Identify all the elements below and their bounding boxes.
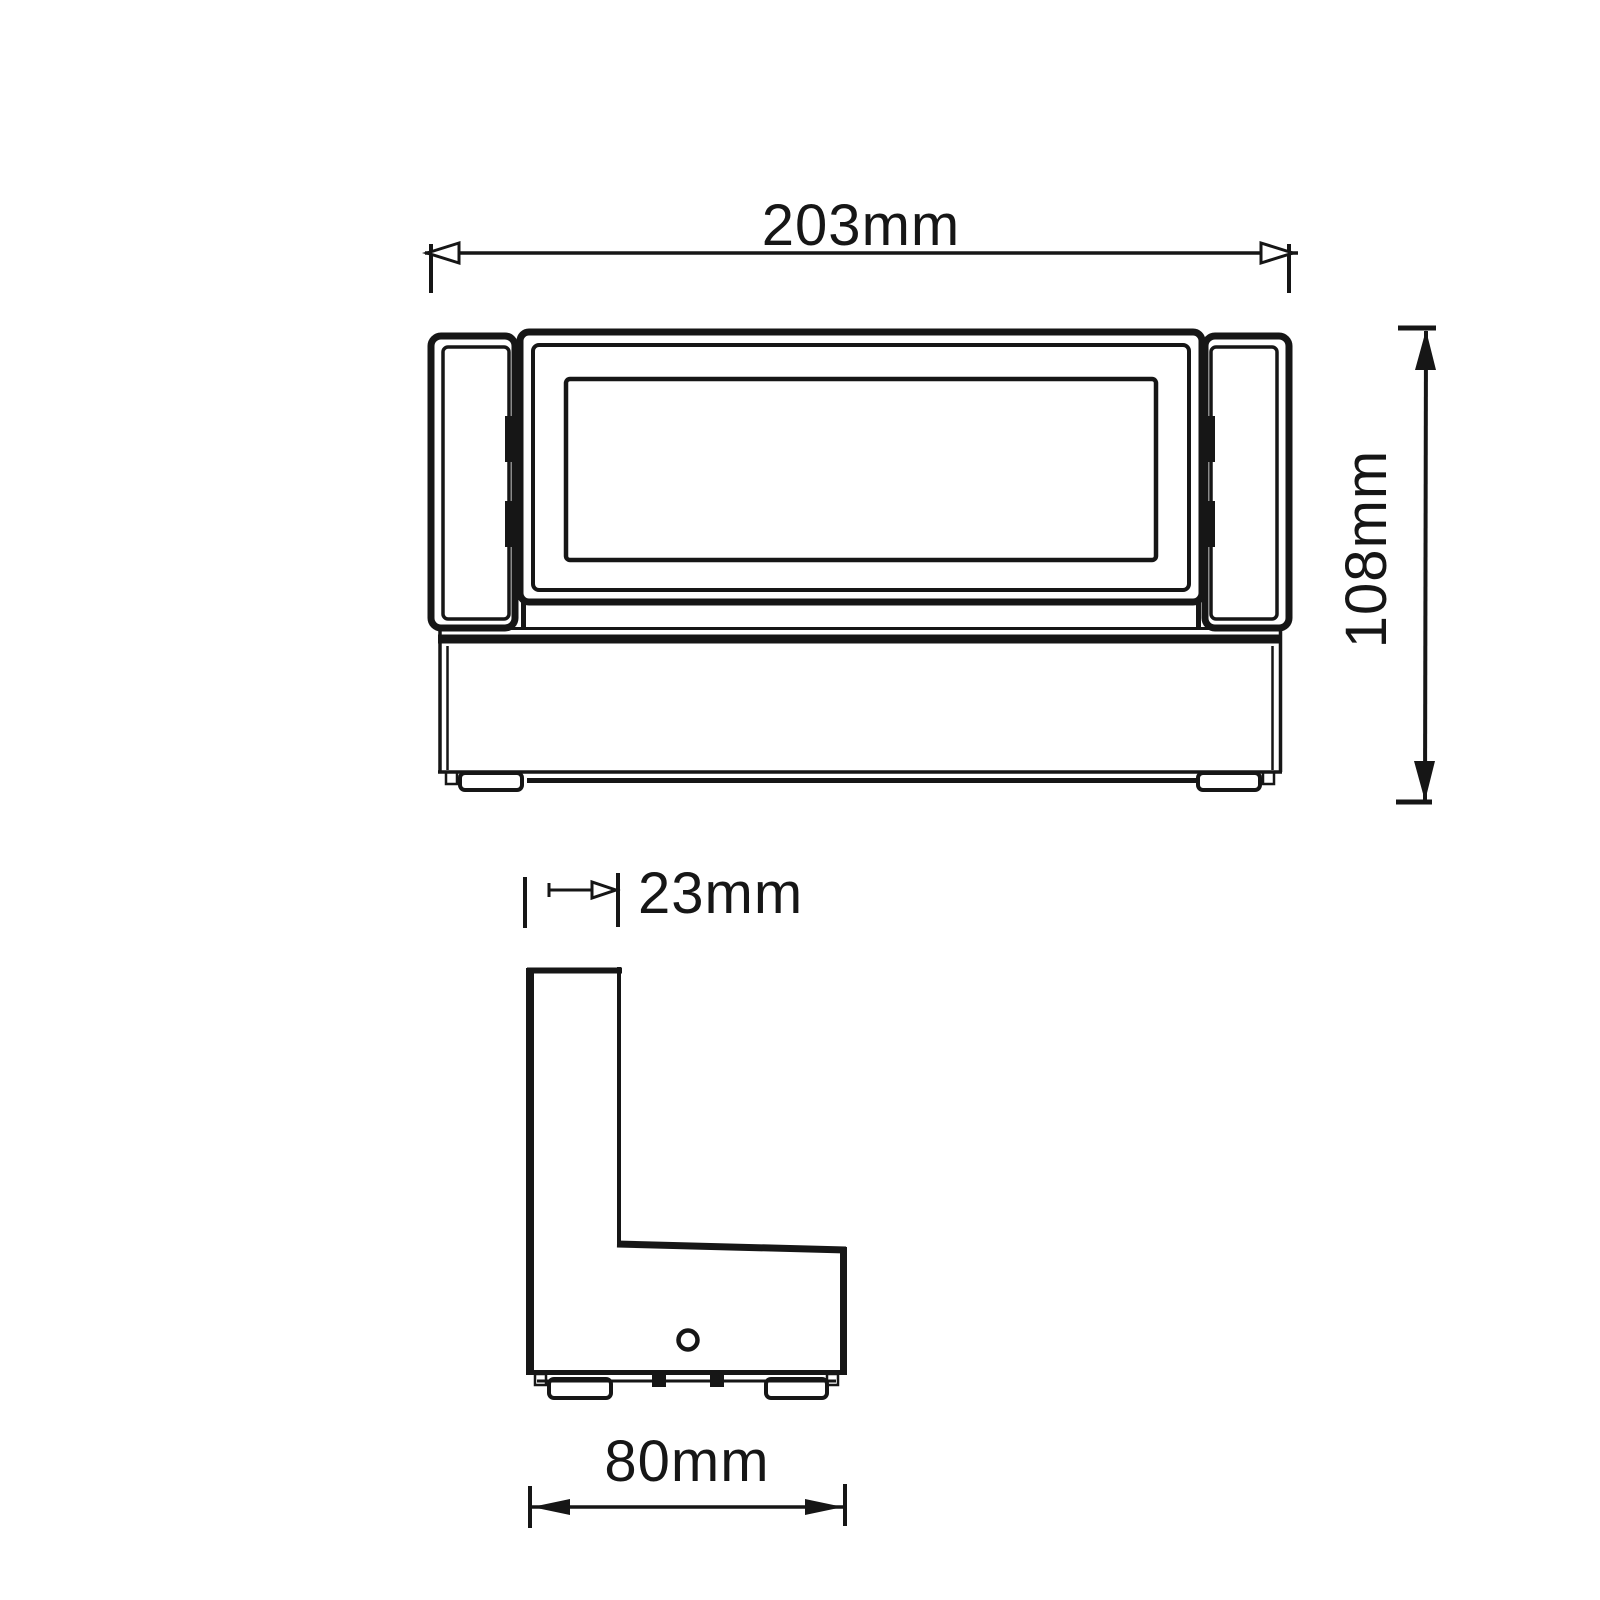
dim-depth-label: 23mm xyxy=(638,861,803,926)
technical-drawing: 203mm xyxy=(0,0,1600,1600)
front-left-tab-upper xyxy=(505,416,517,462)
dimension-drawing-page: 203mm xyxy=(0,0,1600,1600)
dim-width-label: 203mm xyxy=(762,193,960,258)
dim-height-line xyxy=(1425,331,1426,800)
side-bottom-tab-left xyxy=(652,1374,666,1387)
dim-base-label: 80mm xyxy=(604,1429,769,1494)
front-left-tab-lower xyxy=(505,501,517,547)
front-lamp-frame xyxy=(520,332,1202,629)
dim-height-label: 108mm xyxy=(1334,450,1399,648)
side-bottom-tab-right xyxy=(710,1374,724,1387)
